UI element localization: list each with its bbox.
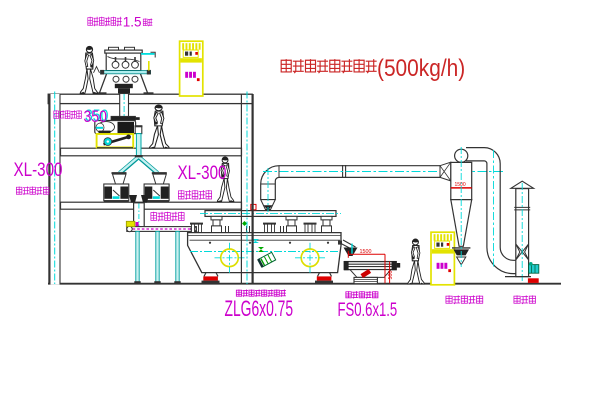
svg-text:1.5: 1.5: [123, 14, 142, 29]
svg-text:1500: 1500: [360, 249, 372, 255]
svg-text:XL-300: XL-300: [14, 158, 63, 180]
svg-text:350: 350: [84, 108, 107, 126]
svg-text:XL-300: XL-300: [178, 162, 227, 184]
svg-text:(500kg/h): (500kg/h): [377, 55, 465, 82]
svg-text:500: 500: [388, 271, 394, 280]
svg-text:1500: 1500: [455, 182, 466, 188]
svg-text:FS0.6x1.5: FS0.6x1.5: [338, 300, 398, 321]
svg-text:ZLG6x0.75: ZLG6x0.75: [225, 295, 294, 320]
